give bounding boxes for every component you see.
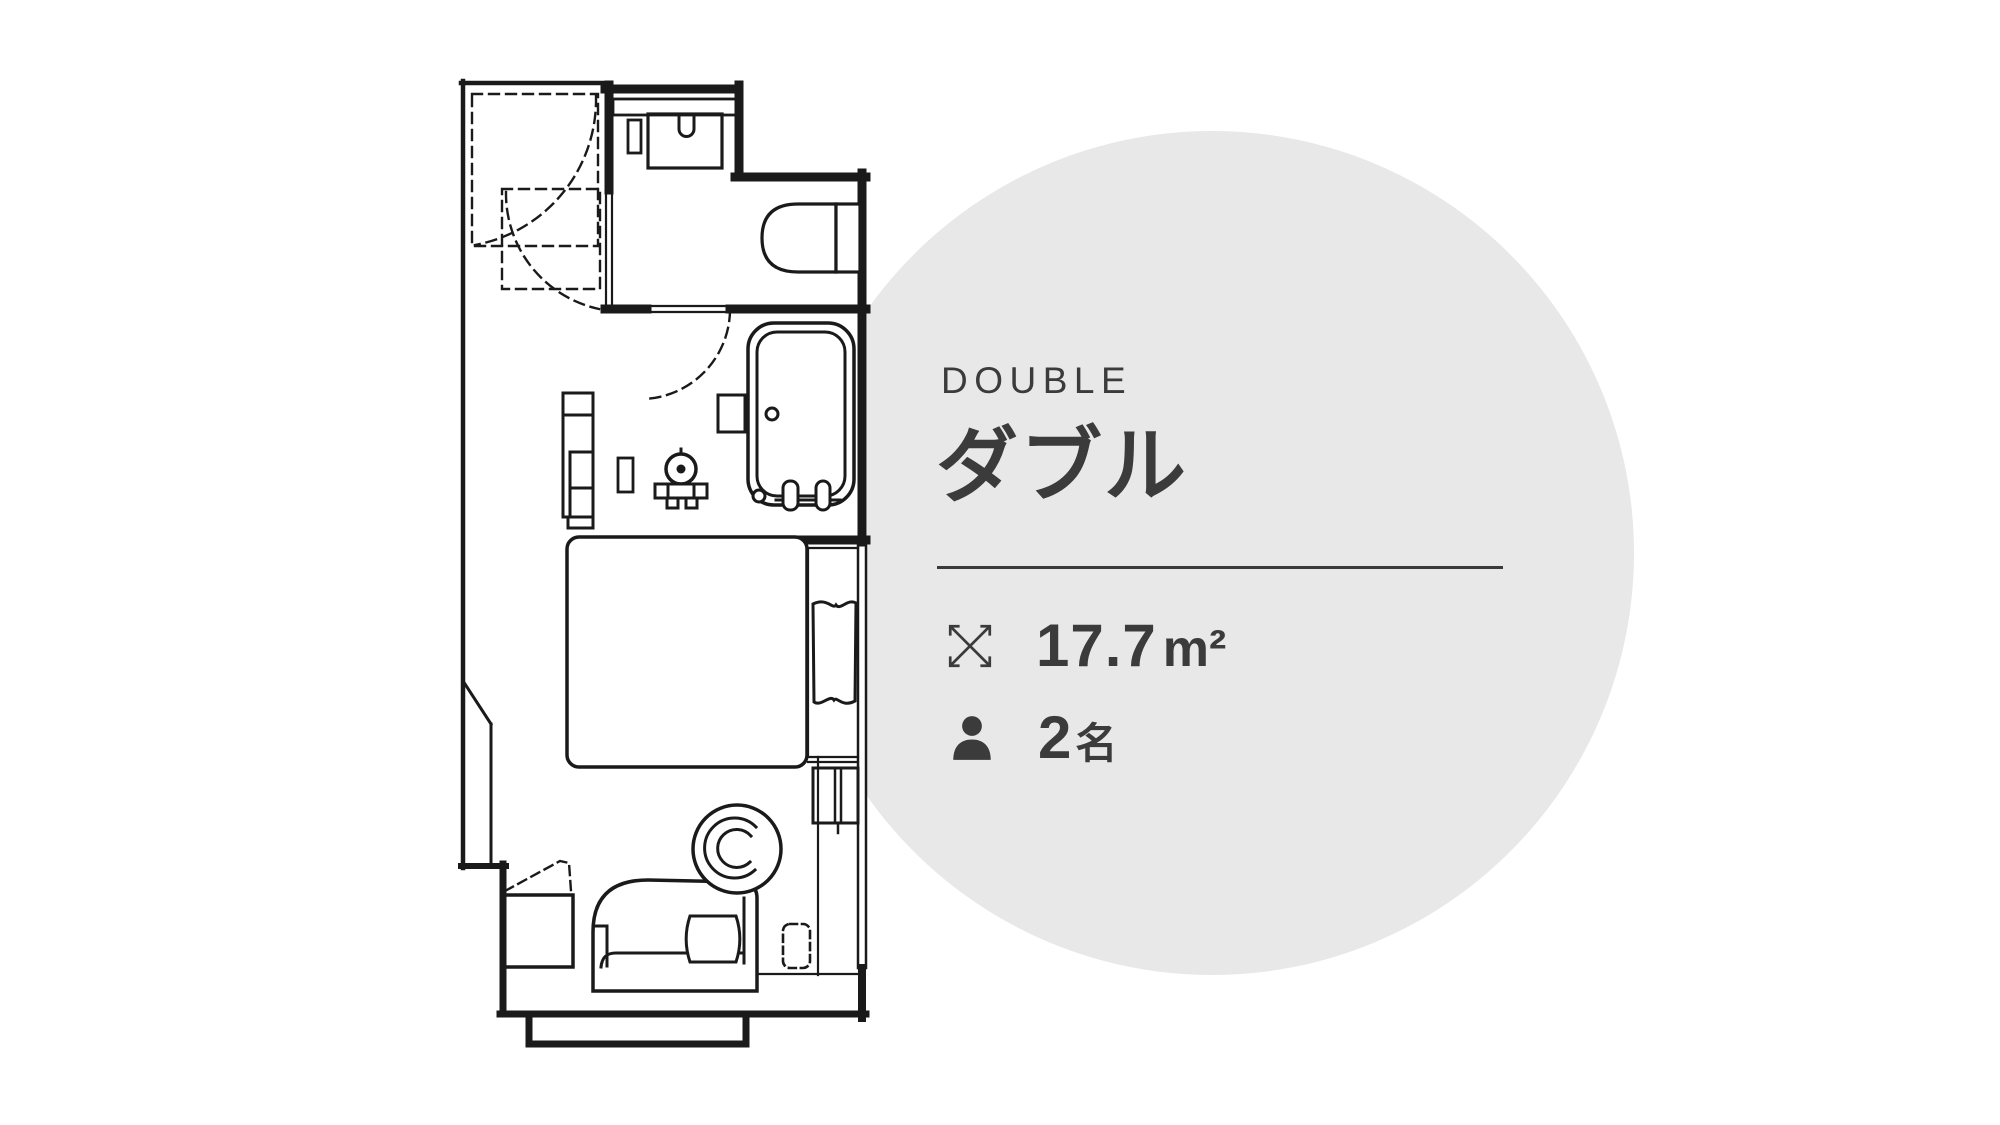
double-bed xyxy=(567,537,807,767)
floor-plan xyxy=(440,40,900,1080)
round-chair xyxy=(693,805,781,893)
sofa xyxy=(593,880,757,991)
room-info-graphic: DOUBLE ダブル 17.7 m² 2 名 xyxy=(0,0,2000,1125)
window-curtain xyxy=(813,602,856,703)
toilet-tank xyxy=(836,204,860,272)
toilet-bowl xyxy=(762,204,836,272)
bathtub xyxy=(748,323,854,505)
cushion xyxy=(686,916,740,962)
gray-circle-background xyxy=(790,131,1634,975)
